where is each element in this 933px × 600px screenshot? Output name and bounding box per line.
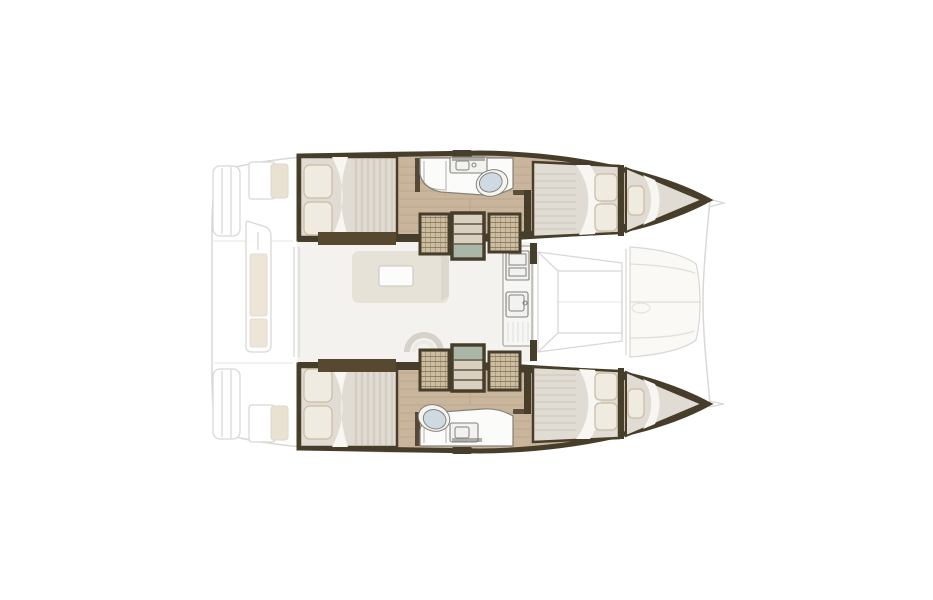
saloon-table: [379, 266, 413, 286]
pillow: [628, 186, 644, 215]
wardrobe-cabinet: [489, 214, 520, 252]
wardrobe-cabinet: [420, 214, 449, 254]
aft-double-bed: [300, 157, 397, 245]
cockpit-bench-cushion-port: [249, 162, 288, 199]
cockpit-table-top: [250, 254, 267, 316]
bed-foot-shelf: [318, 232, 396, 245]
cockpit-table-leaf: [250, 319, 267, 347]
companionway-stairs: [452, 213, 484, 259]
stove: [506, 251, 529, 280]
pillow: [304, 165, 332, 198]
bow-divider: [618, 165, 624, 236]
saloon: [294, 242, 533, 362]
swim-steps-starboard: [213, 369, 240, 439]
pillow: [595, 204, 617, 231]
catamaran-floor-plan: [0, 0, 933, 600]
galley-sink: [506, 292, 528, 317]
galley: [503, 243, 537, 361]
forward-bulkhead-top: [530, 243, 537, 264]
pillow: [304, 202, 332, 235]
pillow: [595, 174, 617, 201]
sofa-edge-shadow: [441, 253, 449, 301]
forward-bulkhead-bottom: [530, 340, 537, 361]
floor-plan-canvas: [0, 0, 933, 600]
deck-hatch: [452, 150, 472, 157]
cockpit-bench-cushion-starboard: [249, 405, 288, 442]
swim-steps-port: [213, 166, 240, 236]
forward-cockpit: [538, 247, 700, 357]
